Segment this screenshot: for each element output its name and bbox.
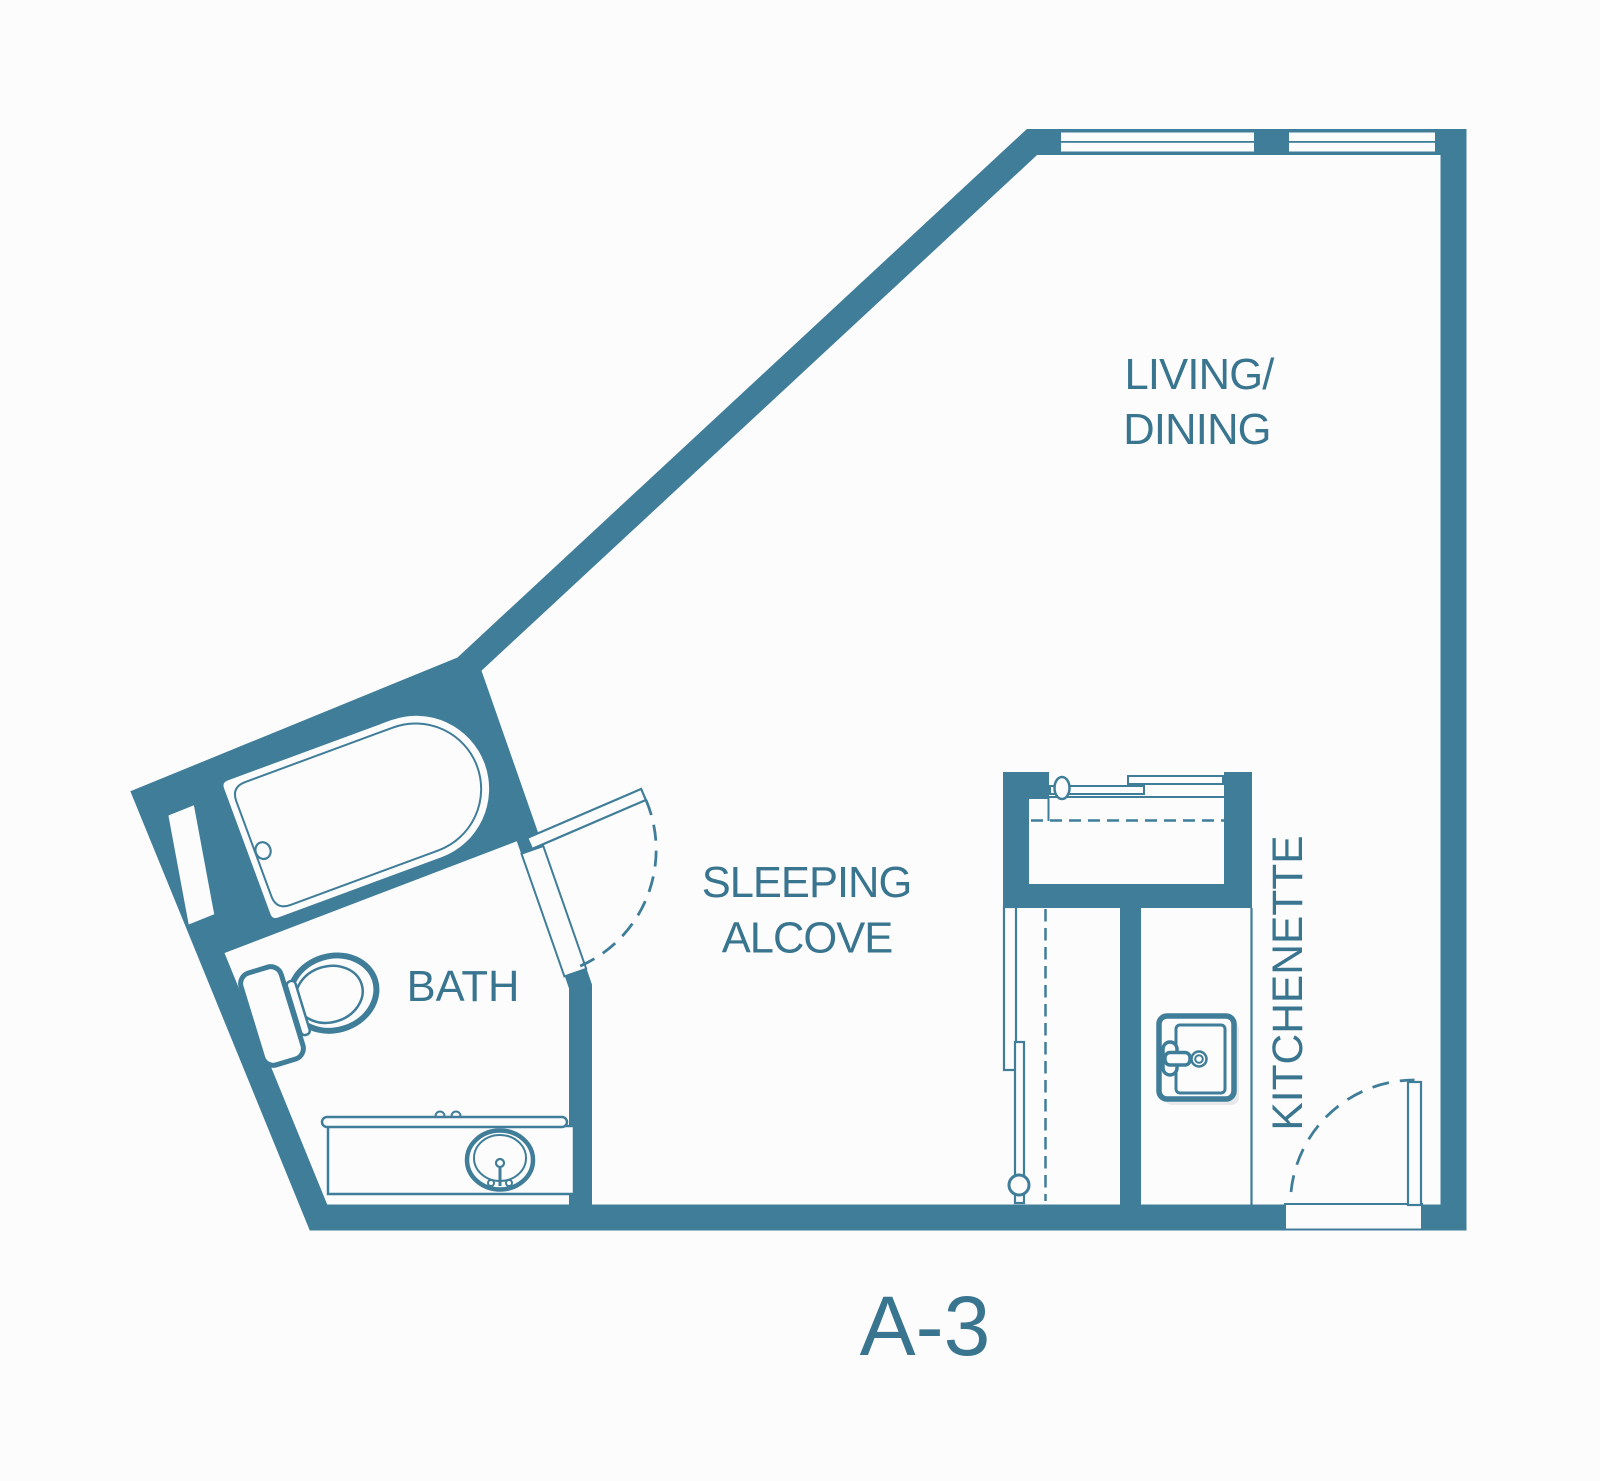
svg-text:A-3: A-3 <box>860 1279 991 1373</box>
svg-text:DINING: DINING <box>1123 406 1270 454</box>
svg-text:KITCHENETTE: KITCHENETTE <box>1265 835 1312 1130</box>
svg-text:SLEEPING: SLEEPING <box>702 859 912 907</box>
svg-text:LIVING/: LIVING/ <box>1124 351 1275 399</box>
svg-text:ALCOVE: ALCOVE <box>722 915 893 963</box>
svg-text:BATH: BATH <box>407 963 520 1011</box>
